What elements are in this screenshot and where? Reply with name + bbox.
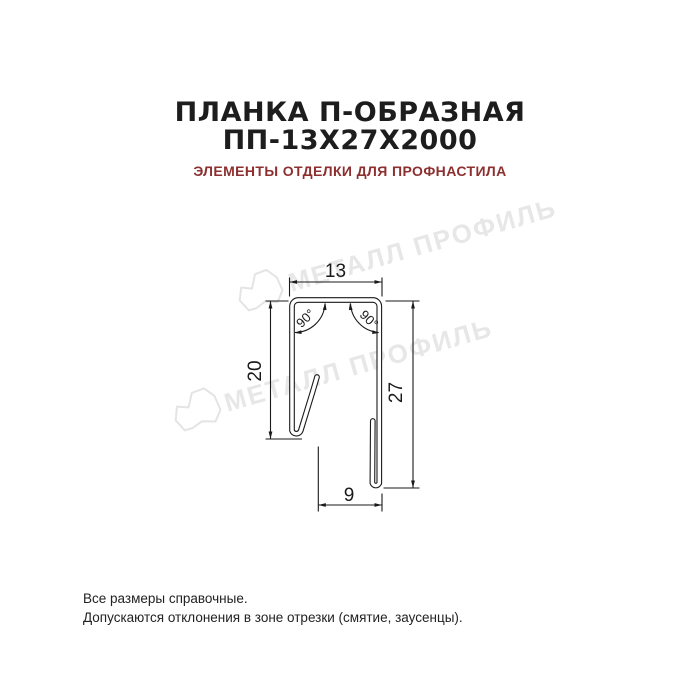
brand-cloud-icon: [169, 386, 223, 432]
angle-left-90: 90°: [293, 303, 327, 335]
dim-label-13: 13: [325, 261, 346, 282]
dim-label-27: 27: [386, 382, 407, 403]
brand-cloud-icon: [234, 267, 286, 312]
watermark: МЕТАЛЛ ПРОФИЛЬ: [234, 188, 560, 312]
footer-note-2: Допускаются отклонения в зоне отрезки (с…: [83, 608, 463, 627]
angle-label-left: 90°: [293, 306, 318, 330]
watermark: МЕТАЛЛ ПРОФИЛЬ: [169, 307, 496, 432]
footer-note-1: Все размеры справочные.: [83, 589, 463, 608]
dim-label-9: 9: [344, 485, 355, 506]
spec-sheet-page: ПЛАНКА П-ОБРАЗНАЯ ПП-13Х27Х2000 ЭЛЕМЕНТЫ…: [0, 0, 700, 700]
footer-notes: Все размеры справочные. Допускаются откл…: [83, 589, 463, 627]
angle-right-90: 90°: [348, 303, 381, 335]
dimension-right-height: 27: [384, 301, 420, 488]
dim-label-20: 20: [245, 360, 266, 381]
